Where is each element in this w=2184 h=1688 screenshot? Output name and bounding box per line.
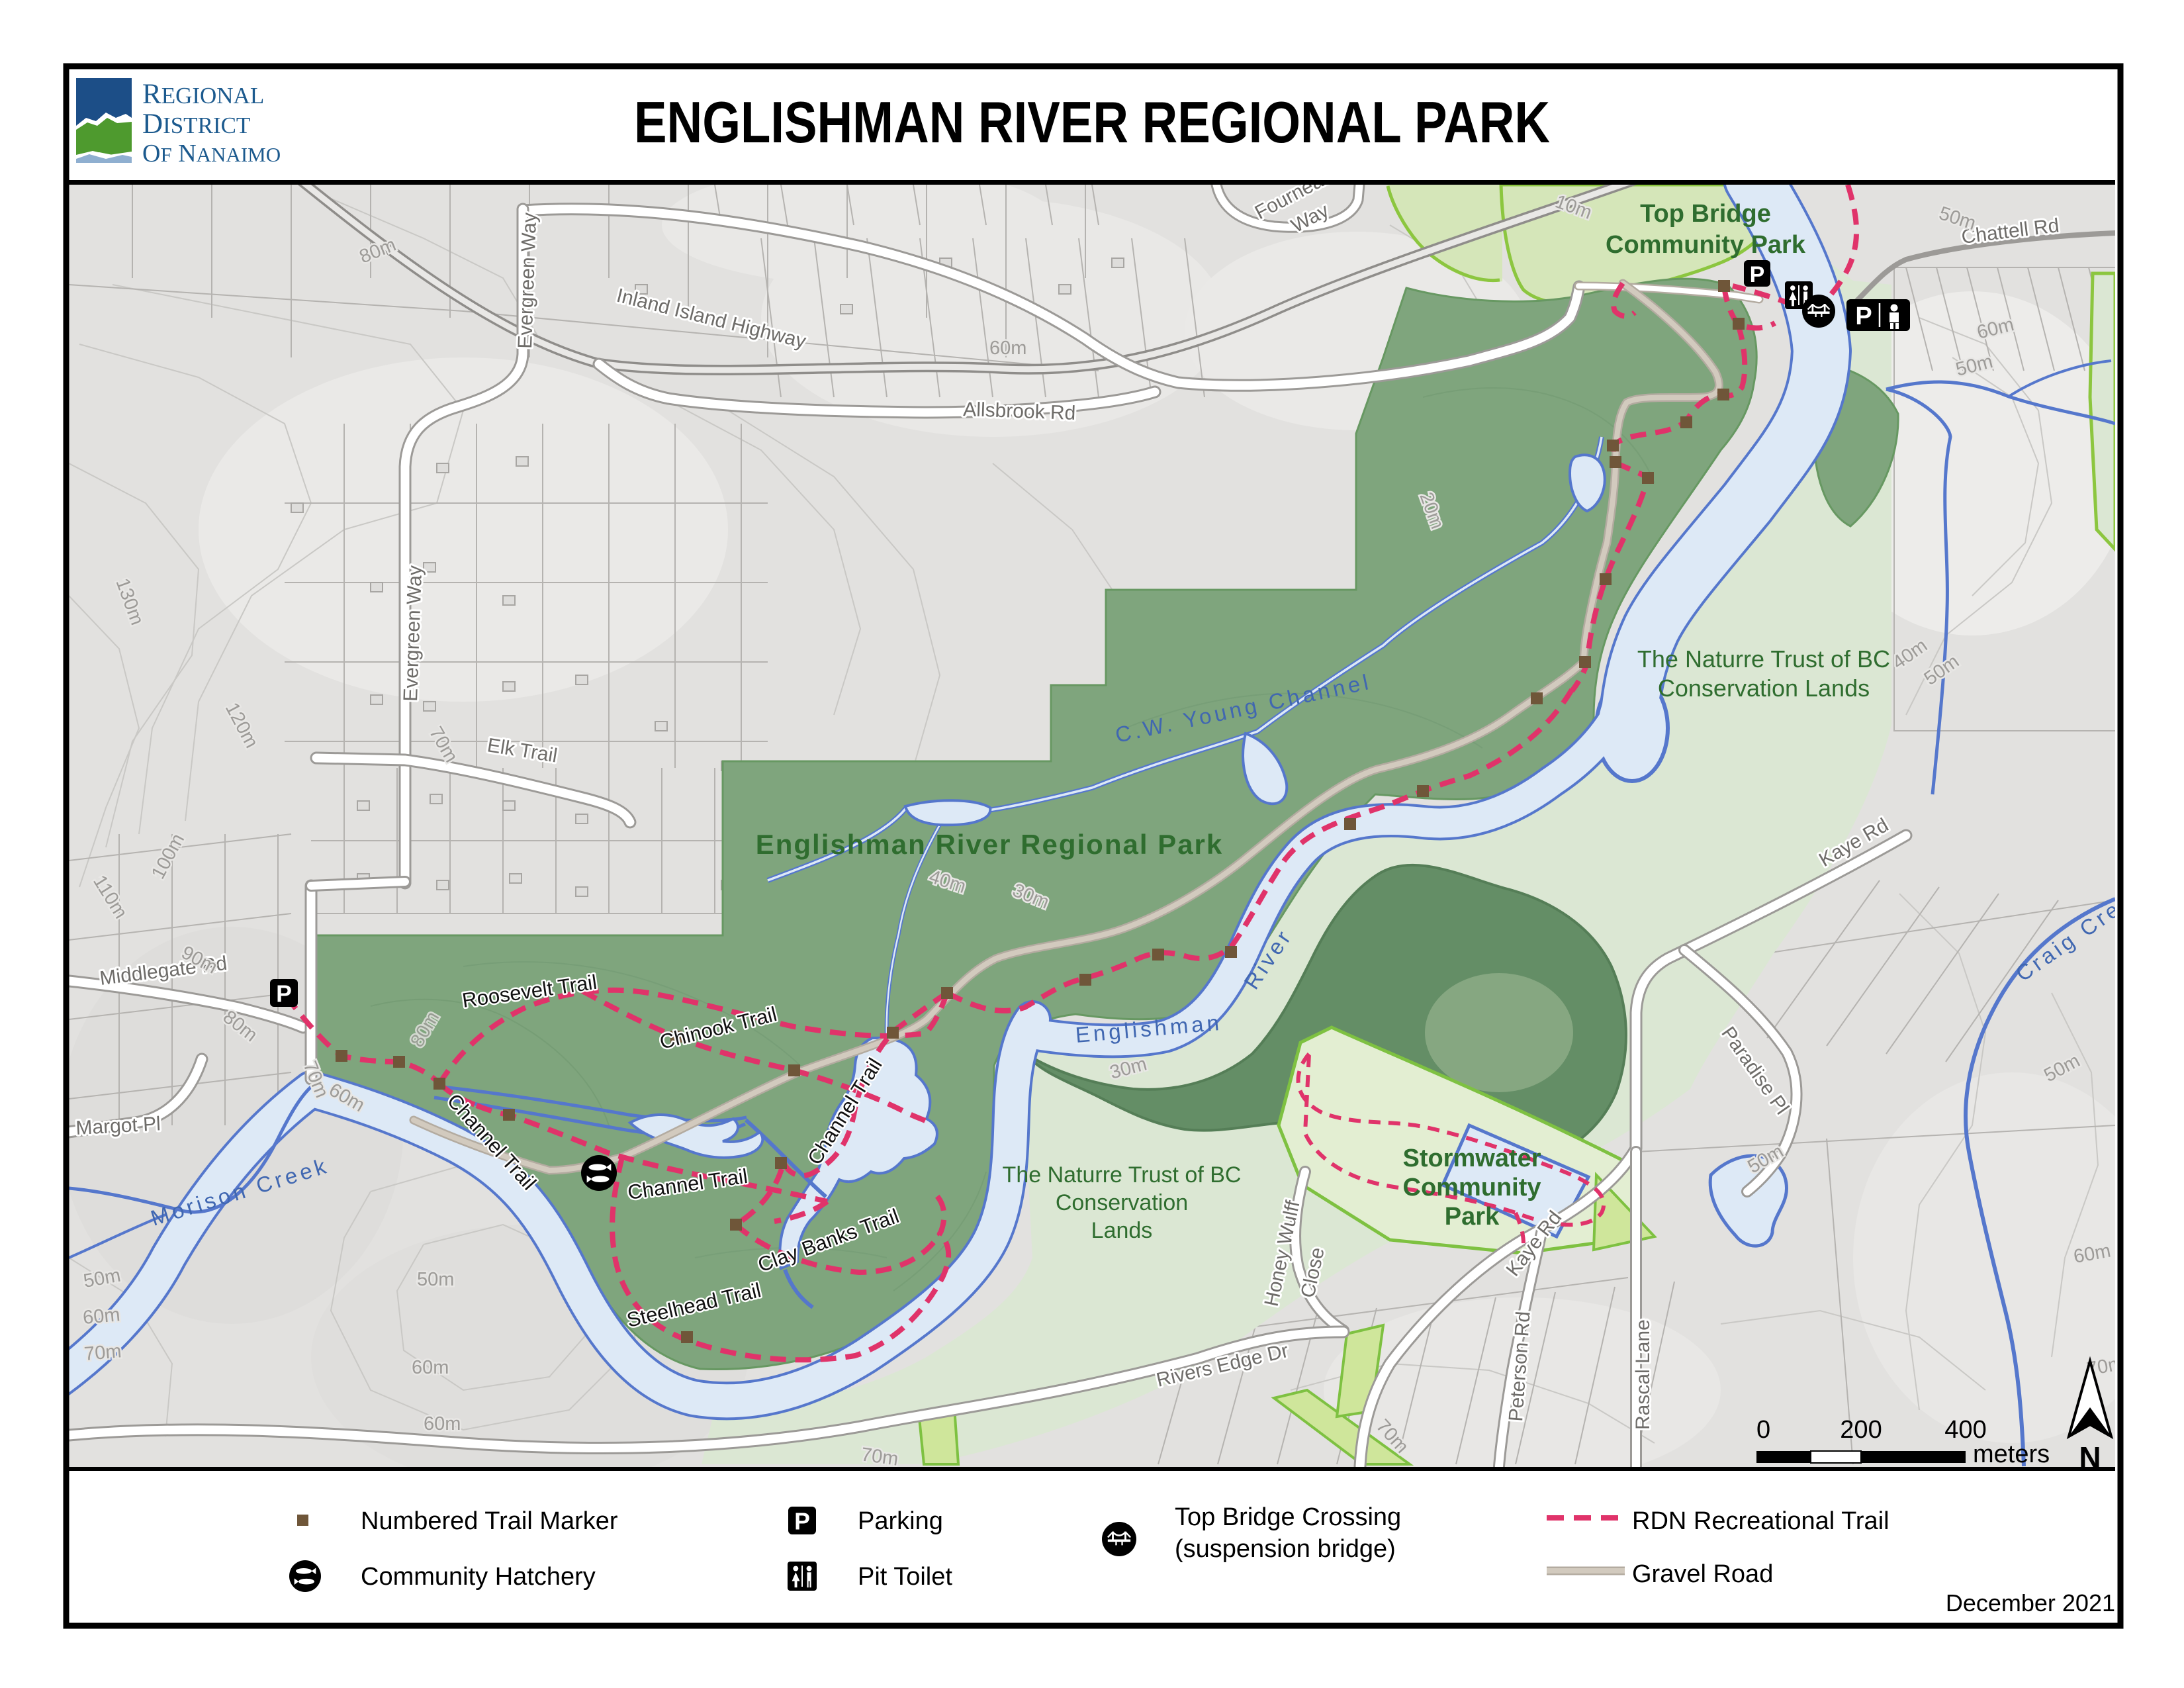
svg-text:60m: 60m [424, 1413, 461, 1434]
svg-text:December 2021: December 2021 [1946, 1589, 2115, 1617]
svg-text:meters: meters [1973, 1440, 2050, 1468]
svg-text:RDN Recreational Trail: RDN Recreational Trail [1632, 1507, 1889, 1535]
svg-text:Numbered Trail Marker: Numbered Trail Marker [361, 1507, 618, 1535]
svg-text:Top Bridge Crossing: Top Bridge Crossing [1175, 1503, 1401, 1531]
svg-text:ENGLISHMAN RIVER REGIONAL PARK: ENGLISHMAN RIVER REGIONAL PARK [634, 89, 1550, 155]
svg-text:REGIONAL: REGIONAL [142, 79, 264, 110]
svg-text:50m: 50m [417, 1269, 454, 1290]
svg-text:Margot Pl: Margot Pl [75, 1113, 161, 1139]
svg-text:Rascal Lane: Rascal Lane [1632, 1319, 1654, 1430]
svg-text:DISTRICT: DISTRICT [142, 109, 250, 140]
svg-text:P: P [1750, 262, 1765, 287]
svg-text:The Naturre Trust of BC: The Naturre Trust of BC [1003, 1162, 1242, 1188]
svg-text:P: P [1855, 303, 1872, 330]
svg-text:Parking: Parking [858, 1507, 943, 1535]
svg-text:P: P [276, 980, 292, 1007]
svg-text:Park: Park [1445, 1203, 1500, 1231]
svg-text:60m: 60m [412, 1357, 449, 1378]
svg-text:Allsbrook Rd: Allsbrook Rd [963, 399, 1076, 424]
svg-text:Community: Community [1403, 1174, 1541, 1201]
svg-text:400: 400 [1944, 1416, 1986, 1444]
svg-text:Stormwater: Stormwater [1402, 1145, 1541, 1172]
svg-text:60m: 60m [989, 338, 1026, 359]
svg-text:Conservation Lands: Conservation Lands [1658, 675, 1870, 702]
svg-text:60m: 60m [82, 1304, 121, 1329]
svg-text:Gravel Road: Gravel Road [1632, 1560, 1773, 1588]
svg-text:Lands: Lands [1091, 1218, 1153, 1243]
svg-text:Englishman River Regional Park: Englishman River Regional Park [756, 829, 1224, 860]
svg-text:70m: 70m [83, 1340, 122, 1365]
svg-text:Community Hatchery: Community Hatchery [361, 1563, 596, 1591]
svg-text:Community Park: Community Park [1606, 231, 1806, 259]
svg-text:Pit Toilet: Pit Toilet [858, 1563, 952, 1591]
svg-text:Conservation: Conservation [1056, 1190, 1188, 1215]
svg-text:The Naturre Trust of BC: The Naturre Trust of BC [1637, 645, 1890, 673]
svg-text:P: P [794, 1508, 810, 1534]
svg-text:(suspension bridge): (suspension bridge) [1175, 1535, 1396, 1563]
svg-text:Top Bridge: Top Bridge [1640, 200, 1771, 228]
svg-text:OF NANAIMO: OF NANAIMO [142, 140, 281, 167]
svg-text:0: 0 [1756, 1416, 1770, 1444]
svg-text:200: 200 [1840, 1416, 1882, 1444]
